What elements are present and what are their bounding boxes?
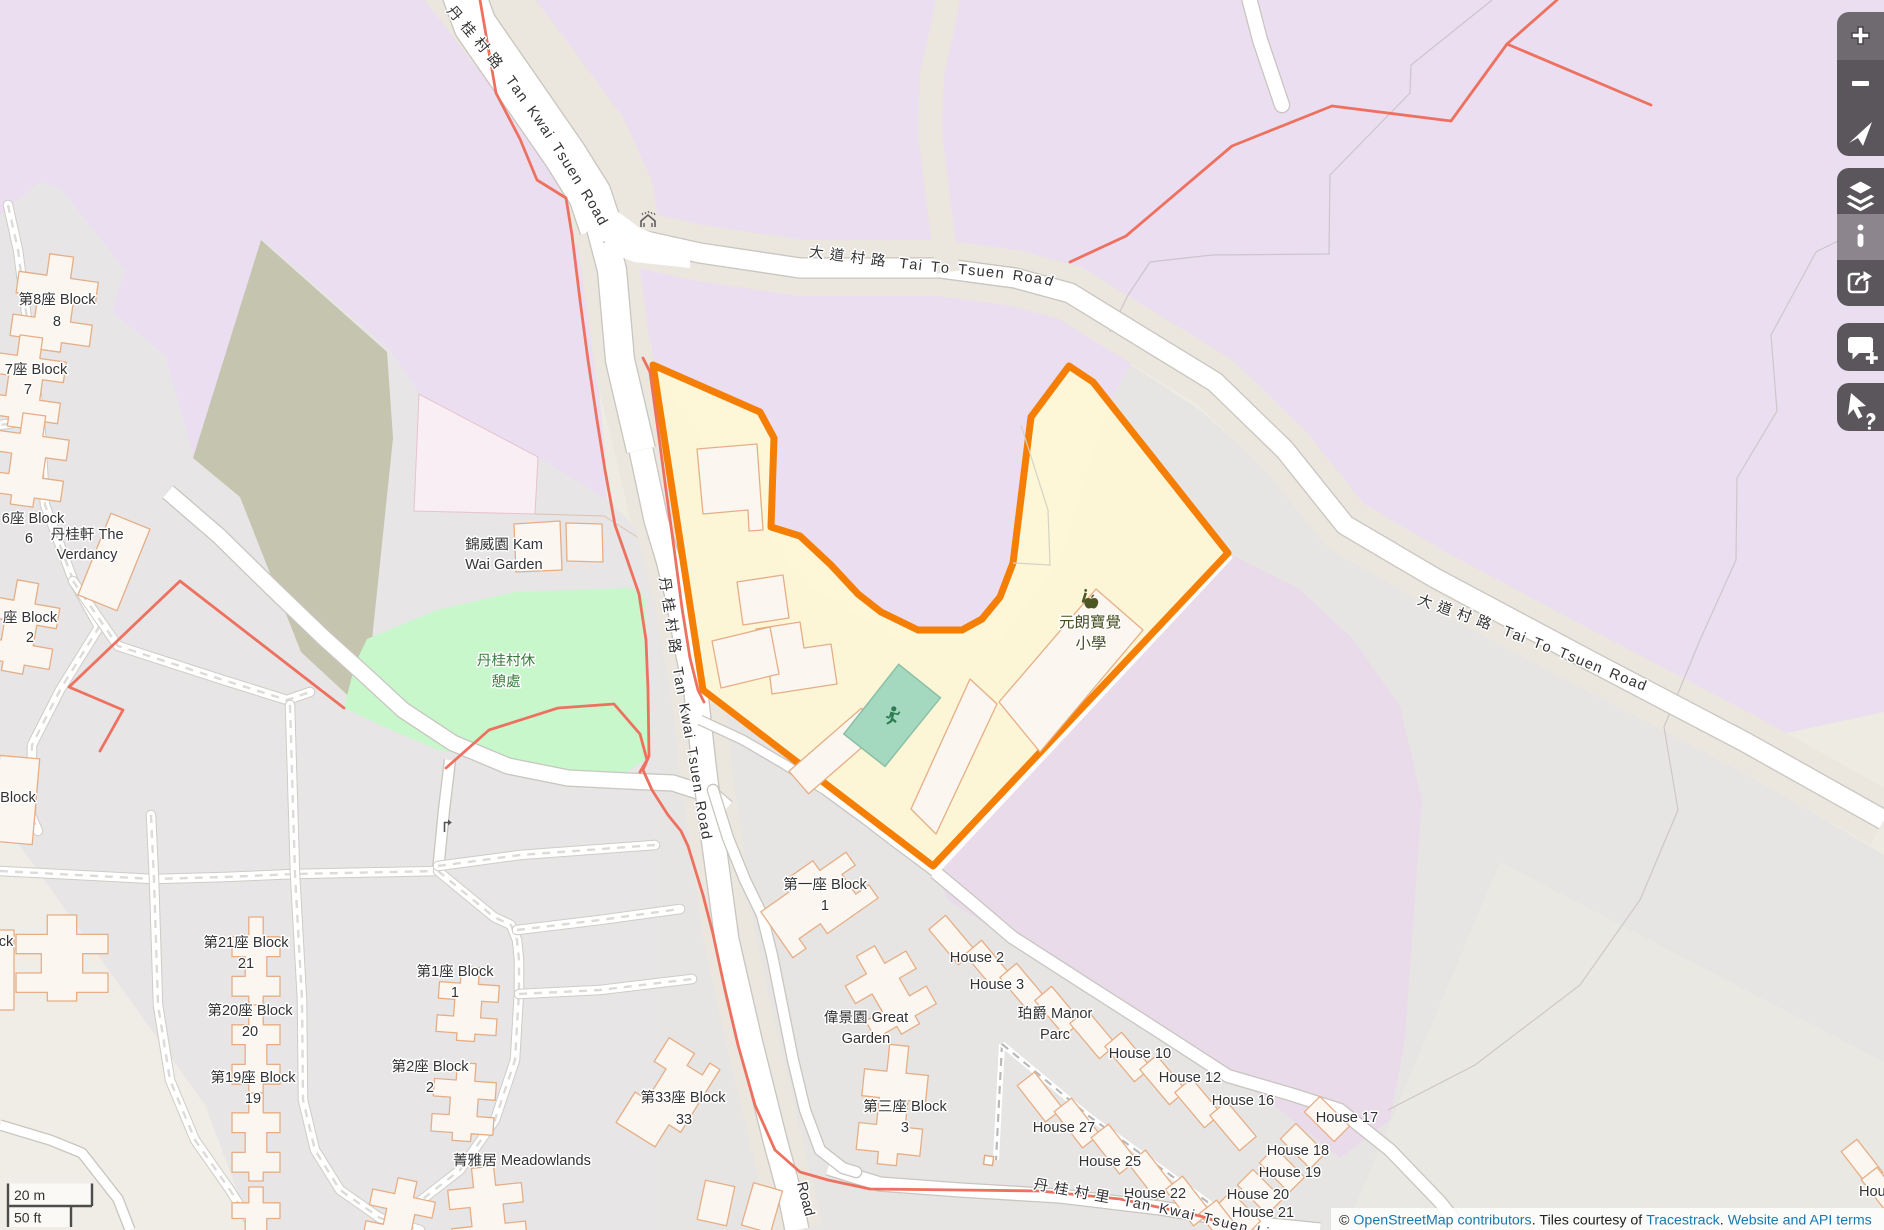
svg-text:21: 21 bbox=[218, 935, 234, 951]
svg-text:Website and API terms: Website and API terms bbox=[1728, 1213, 1872, 1229]
svg-text:s: s bbox=[967, 263, 976, 280]
svg-text:Block: Block bbox=[686, 1090, 726, 1106]
svg-text:.: . bbox=[1720, 1213, 1724, 1229]
svg-text:2: 2 bbox=[406, 1059, 414, 1075]
svg-text:Block: Block bbox=[827, 877, 867, 893]
svg-text:Wai Garden: Wai Garden bbox=[465, 557, 542, 573]
svg-text:. Tiles courtesy of: . Tiles courtesy of bbox=[1532, 1213, 1642, 1229]
svg-text:House 3: House 3 bbox=[970, 977, 1024, 993]
svg-text:Block: Block bbox=[0, 790, 36, 806]
svg-text:Block: Block bbox=[249, 935, 289, 951]
svg-text:House 10: House 10 bbox=[1109, 1046, 1171, 1062]
svg-text:1: 1 bbox=[451, 985, 459, 1001]
svg-text:Manor: Manor bbox=[1047, 1006, 1093, 1022]
svg-text:6: 6 bbox=[25, 531, 33, 547]
svg-text:1: 1 bbox=[431, 964, 439, 980]
svg-text:u: u bbox=[976, 264, 986, 281]
svg-text:21: 21 bbox=[238, 956, 254, 972]
svg-text:20 m: 20 m bbox=[14, 1187, 45, 1203]
svg-text:8: 8 bbox=[33, 292, 41, 308]
svg-text:Block: Block bbox=[17, 610, 57, 626]
svg-text:Block: Block bbox=[253, 1003, 293, 1019]
svg-text:Verdancy: Verdancy bbox=[57, 547, 119, 563]
svg-text:2: 2 bbox=[426, 1080, 434, 1096]
svg-text:Block: Block bbox=[25, 511, 65, 527]
svg-text:33: 33 bbox=[655, 1090, 671, 1106]
svg-text:ck: ck bbox=[0, 934, 14, 950]
svg-text:Kam: Kam bbox=[509, 537, 543, 553]
svg-text:Parc: Parc bbox=[1040, 1027, 1070, 1043]
svg-text:6: 6 bbox=[2, 511, 10, 527]
svg-text:R: R bbox=[1012, 268, 1025, 285]
svg-text:Great: Great bbox=[868, 1010, 909, 1026]
svg-text:Block: Block bbox=[28, 362, 68, 378]
svg-text:19: 19 bbox=[245, 1091, 261, 1107]
svg-text:©: © bbox=[1339, 1213, 1350, 1229]
svg-text:Meadowlands: Meadowlands bbox=[497, 1153, 591, 1169]
svg-text:19: 19 bbox=[225, 1070, 241, 1086]
svg-text:8: 8 bbox=[53, 314, 61, 330]
svg-text:Block: Block bbox=[429, 1059, 469, 1075]
svg-text:House 25: House 25 bbox=[1079, 1154, 1141, 1170]
svg-text:o: o bbox=[940, 260, 950, 277]
svg-text:33: 33 bbox=[676, 1112, 692, 1128]
svg-text:Tracestrack: Tracestrack bbox=[1646, 1213, 1720, 1229]
svg-text:7: 7 bbox=[5, 362, 13, 378]
svg-text:House 19: House 19 bbox=[1259, 1165, 1321, 1181]
svg-text:T: T bbox=[930, 259, 940, 276]
svg-text:1: 1 bbox=[821, 898, 829, 914]
svg-text:20: 20 bbox=[222, 1003, 238, 1019]
svg-text:20: 20 bbox=[242, 1024, 258, 1040]
svg-text:2: 2 bbox=[26, 630, 34, 646]
svg-text:Block: Block bbox=[454, 964, 494, 980]
svg-text:Hous: Hous bbox=[1859, 1184, 1884, 1200]
svg-text:Garden: Garden bbox=[842, 1031, 891, 1047]
svg-text:House 18: House 18 bbox=[1267, 1143, 1329, 1159]
svg-text:The: The bbox=[94, 527, 123, 543]
svg-text:T: T bbox=[957, 262, 967, 279]
svg-text:House 2: House 2 bbox=[950, 950, 1004, 966]
svg-text:e: e bbox=[985, 264, 995, 281]
svg-text:House 12: House 12 bbox=[1159, 1070, 1221, 1086]
svg-text:House 20: House 20 bbox=[1227, 1187, 1289, 1203]
svg-text:Block: Block bbox=[256, 1070, 296, 1086]
svg-text:OpenStreetMap contributors: OpenStreetMap contributors bbox=[1353, 1213, 1531, 1229]
svg-text:50 ft: 50 ft bbox=[14, 1210, 41, 1226]
svg-text:House 27: House 27 bbox=[1033, 1120, 1095, 1136]
svg-text:Block: Block bbox=[907, 1099, 947, 1115]
svg-text:House 17: House 17 bbox=[1316, 1110, 1378, 1126]
svg-text:3: 3 bbox=[901, 1120, 909, 1136]
svg-text:7: 7 bbox=[24, 382, 32, 398]
svg-text:House 16: House 16 bbox=[1212, 1093, 1274, 1109]
svg-text:Block: Block bbox=[56, 292, 96, 308]
